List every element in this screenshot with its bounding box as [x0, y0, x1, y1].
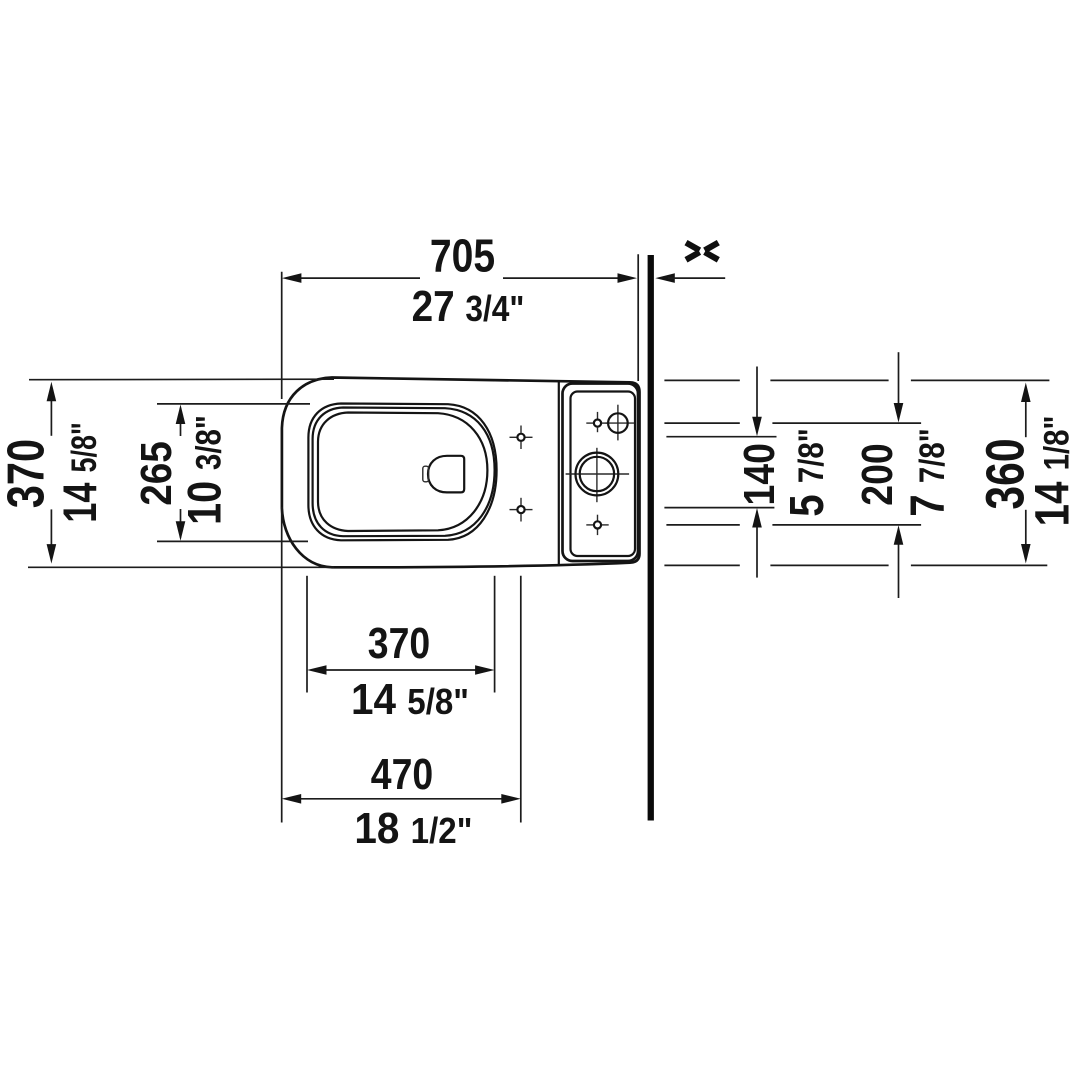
svg-text:265: 265	[131, 441, 181, 506]
svg-text:200: 200	[852, 443, 902, 505]
svg-text:370: 370	[0, 439, 54, 508]
svg-text:470: 470	[371, 749, 433, 799]
svg-text:14 5/8": 14 5/8"	[351, 674, 469, 723]
svg-text:140: 140	[734, 443, 784, 505]
svg-text:705: 705	[430, 231, 495, 283]
svg-text:370: 370	[368, 618, 430, 668]
svg-text:18 1/2": 18 1/2"	[354, 803, 472, 852]
